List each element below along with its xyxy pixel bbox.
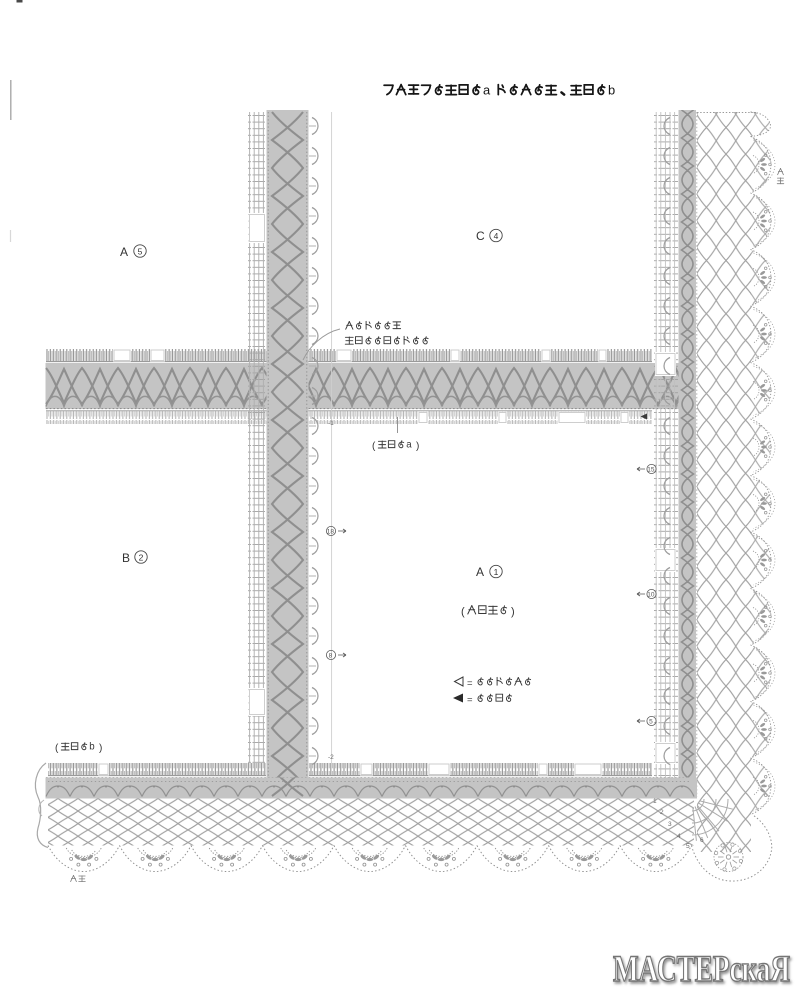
svg-text:A: A [476, 565, 484, 579]
svg-text:): ) [416, 441, 419, 452]
svg-text:-1: -1 [328, 420, 334, 427]
svg-text:=: = [467, 695, 473, 706]
svg-text:B: B [122, 551, 130, 565]
svg-text:3: 3 [668, 821, 672, 828]
svg-text:): ) [99, 743, 102, 754]
svg-text:4: 4 [677, 833, 681, 840]
svg-text:2: 2 [139, 552, 144, 562]
svg-text:2: 2 [660, 809, 664, 816]
svg-text:a: a [406, 440, 412, 451]
svg-text:A: A [120, 245, 128, 259]
svg-text:8: 8 [329, 653, 333, 660]
svg-text:1: 1 [653, 798, 657, 805]
svg-text:=: = [467, 678, 473, 689]
svg-text:18: 18 [327, 529, 335, 536]
svg-text:10: 10 [647, 592, 655, 599]
svg-text:5: 5 [138, 246, 143, 256]
svg-text:1: 1 [494, 567, 499, 577]
svg-text:15: 15 [647, 467, 655, 474]
svg-text:b: b [608, 82, 615, 97]
svg-text:5: 5 [686, 843, 690, 850]
svg-text:): ) [511, 606, 515, 618]
svg-text:a: a [483, 82, 491, 97]
svg-text:МАСТЕРскаЯ: МАСТЕРскаЯ [613, 949, 790, 990]
svg-text:4: 4 [494, 231, 499, 241]
svg-text:b: b [89, 742, 94, 753]
svg-text:5: 5 [649, 719, 653, 726]
svg-text:(: ( [461, 606, 465, 618]
svg-text:-2: -2 [328, 754, 334, 761]
svg-text:6: 6 [700, 837, 704, 844]
svg-text:C: C [476, 229, 485, 243]
